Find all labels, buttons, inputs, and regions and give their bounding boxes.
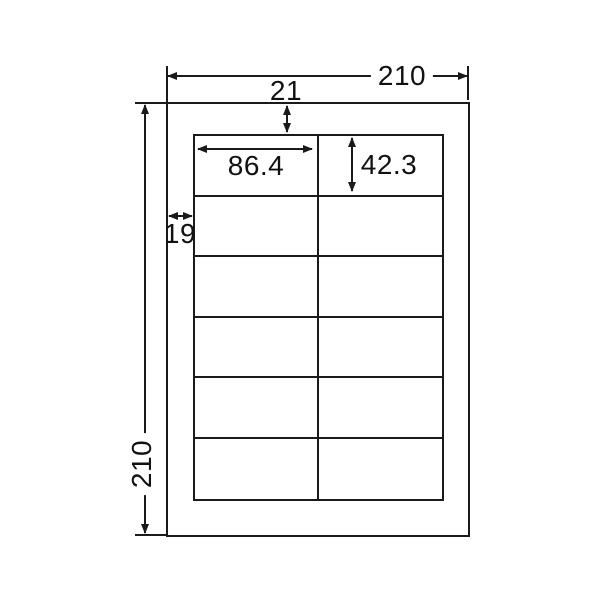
label-sheet-diagram: 210 210 21 19 86.4 42.3 xyxy=(0,0,600,600)
dim-left-margin-label: 19 xyxy=(164,220,196,248)
label-cell xyxy=(319,197,443,258)
label-cell xyxy=(195,197,319,258)
dim-top-margin-label: 21 xyxy=(270,77,302,105)
dim-label-height-label: 42.3 xyxy=(361,151,418,179)
dim-sheet-width-label: 210 xyxy=(371,61,433,91)
label-cell xyxy=(195,439,319,500)
label-cell xyxy=(319,439,443,500)
label-cell xyxy=(319,318,443,379)
label-cell xyxy=(319,378,443,439)
label-grid xyxy=(193,134,444,501)
label-cell xyxy=(195,257,319,318)
label-cell xyxy=(195,318,319,379)
dim-label-width-label: 86.4 xyxy=(228,152,285,180)
dim-sheet-height-label: 210 xyxy=(127,433,157,495)
label-cell xyxy=(319,257,443,318)
label-cell xyxy=(195,378,319,439)
